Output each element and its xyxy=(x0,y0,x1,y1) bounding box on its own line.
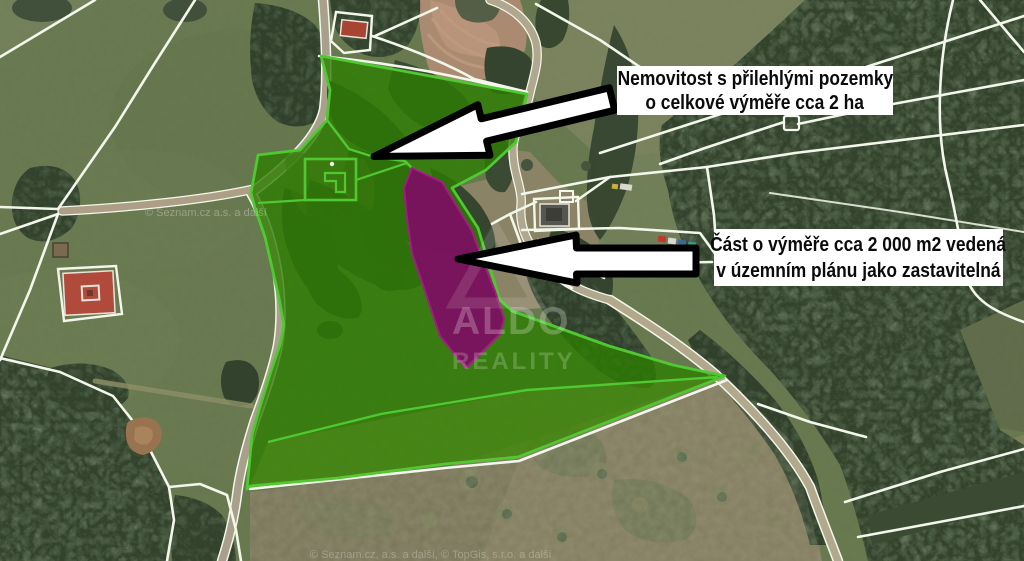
svg-text:REALITY: REALITY xyxy=(452,348,576,375)
svg-text:© Seznam.cz a.s. a další: © Seznam.cz a.s. a další xyxy=(145,207,267,219)
svg-text:ALDO: ALDO xyxy=(452,300,571,343)
svg-text:© Seznam.cz, a.s. a další, © T: © Seznam.cz, a.s. a další, © TopGis, s.r… xyxy=(310,549,552,561)
